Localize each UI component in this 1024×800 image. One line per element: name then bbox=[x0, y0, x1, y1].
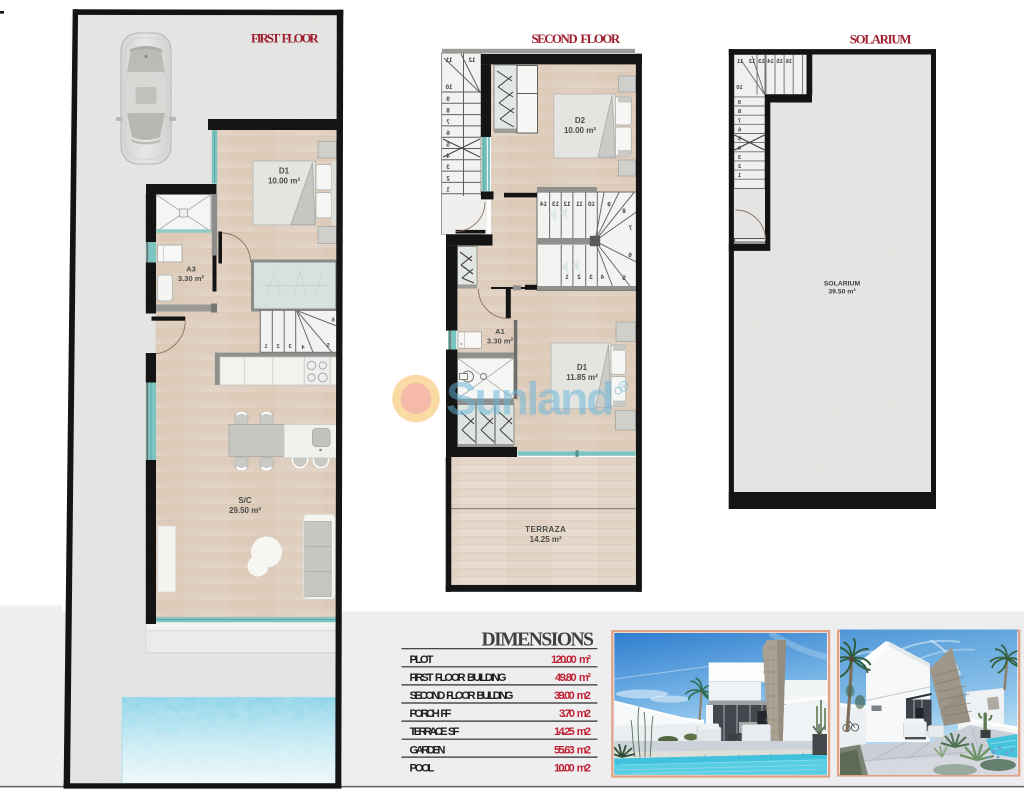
svg-text:2: 2 bbox=[577, 274, 581, 281]
svg-text:SECOND FLOOR BUILDING: SECOND FLOOR BUILDING bbox=[410, 690, 514, 702]
svg-text:D2: D2 bbox=[575, 116, 586, 125]
svg-text:12: 12 bbox=[468, 57, 475, 64]
svg-text:4: 4 bbox=[600, 274, 604, 281]
svg-text:15: 15 bbox=[776, 59, 783, 65]
svg-text:10.00 m2: 10.00 m2 bbox=[554, 762, 591, 774]
svg-text:10.00 m²: 10.00 m² bbox=[564, 126, 596, 135]
svg-text:3: 3 bbox=[589, 274, 593, 281]
svg-text:14: 14 bbox=[540, 201, 547, 208]
svg-text:9: 9 bbox=[446, 96, 450, 103]
svg-text:6: 6 bbox=[446, 130, 450, 137]
svg-text:PLOT: PLOT bbox=[410, 654, 434, 666]
svg-text:SOLARIUM: SOLARIUM bbox=[850, 33, 913, 47]
svg-text:D1: D1 bbox=[279, 167, 290, 176]
svg-text:FIRST FLOOR: FIRST FLOOR bbox=[251, 32, 320, 46]
svg-text:TERRACE SF: TERRACE SF bbox=[410, 726, 460, 738]
svg-text:R: R bbox=[621, 384, 626, 391]
svg-text:DIMENSIONS: DIMENSIONS bbox=[482, 630, 596, 651]
svg-text:Sunland: Sunland bbox=[446, 373, 615, 425]
svg-text:A3: A3 bbox=[186, 265, 196, 274]
svg-text:3.70 m2: 3.70 m2 bbox=[559, 708, 591, 720]
svg-text:D1: D1 bbox=[577, 363, 588, 372]
svg-text:8: 8 bbox=[446, 108, 450, 115]
svg-text:7: 7 bbox=[446, 119, 450, 126]
svg-text:4: 4 bbox=[446, 153, 450, 160]
svg-text:13: 13 bbox=[552, 201, 559, 208]
svg-text:6: 6 bbox=[331, 318, 334, 324]
svg-text:5: 5 bbox=[622, 275, 626, 282]
svg-text:16: 16 bbox=[785, 59, 792, 65]
svg-text:3: 3 bbox=[288, 344, 291, 350]
svg-text:29.50 m²: 29.50 m² bbox=[229, 506, 261, 515]
svg-text:1: 1 bbox=[264, 344, 267, 350]
svg-text:11: 11 bbox=[576, 201, 583, 208]
svg-text:1: 1 bbox=[446, 187, 450, 194]
svg-text:A1: A1 bbox=[495, 327, 505, 336]
svg-text:2: 2 bbox=[276, 344, 279, 350]
svg-text:49.80 m²: 49.80 m² bbox=[555, 672, 591, 684]
svg-text:14: 14 bbox=[767, 59, 774, 65]
svg-text:12: 12 bbox=[749, 59, 755, 65]
svg-text:10: 10 bbox=[736, 85, 742, 91]
svg-text:39.00 m2: 39.00 m2 bbox=[554, 690, 591, 702]
svg-text:3: 3 bbox=[446, 164, 450, 171]
svg-text:13: 13 bbox=[758, 59, 765, 65]
svg-text:12: 12 bbox=[563, 201, 570, 208]
svg-text:14.25 m²: 14.25 m² bbox=[530, 535, 562, 544]
svg-text:SOLARIUM: SOLARIUM bbox=[824, 281, 861, 288]
svg-text:14.25 m2: 14.25 m2 bbox=[554, 726, 591, 738]
svg-text:2: 2 bbox=[446, 175, 450, 182]
svg-text:10.00 m²: 10.00 m² bbox=[268, 177, 300, 186]
svg-text:10: 10 bbox=[588, 201, 595, 208]
svg-text:120.00 m²: 120.00 m² bbox=[551, 654, 591, 666]
svg-text:7: 7 bbox=[738, 118, 741, 124]
svg-text:PORCH FF: PORCH FF bbox=[410, 708, 452, 720]
svg-text:GARDEN: GARDEN bbox=[410, 744, 446, 756]
svg-text:55.63 m2: 55.63 m2 bbox=[554, 744, 591, 756]
svg-text:FIRST FLOOR BUILDING: FIRST FLOOR BUILDING bbox=[410, 672, 507, 684]
svg-text:2: 2 bbox=[738, 164, 741, 170]
svg-text:1: 1 bbox=[565, 274, 569, 281]
svg-text:11: 11 bbox=[445, 57, 452, 64]
svg-text:11: 11 bbox=[736, 59, 743, 65]
svg-text:TERRAZA: TERRAZA bbox=[525, 525, 566, 534]
svg-text:8: 8 bbox=[622, 208, 626, 215]
svg-text:10: 10 bbox=[445, 84, 452, 91]
svg-text:3.30 m²: 3.30 m² bbox=[487, 337, 514, 346]
svg-text:SECOND FLOOR: SECOND FLOOR bbox=[532, 32, 622, 46]
svg-text:5: 5 bbox=[446, 142, 450, 149]
svg-text:7: 7 bbox=[628, 225, 632, 232]
svg-text:3.30 m²: 3.30 m² bbox=[178, 274, 205, 283]
svg-text:S/C: S/C bbox=[238, 496, 252, 505]
svg-text:39.50 m²: 39.50 m² bbox=[828, 289, 856, 296]
svg-text:9: 9 bbox=[607, 202, 611, 209]
svg-text:POOL: POOL bbox=[410, 762, 435, 774]
svg-text:6: 6 bbox=[628, 252, 632, 259]
svg-text:5: 5 bbox=[326, 343, 329, 349]
